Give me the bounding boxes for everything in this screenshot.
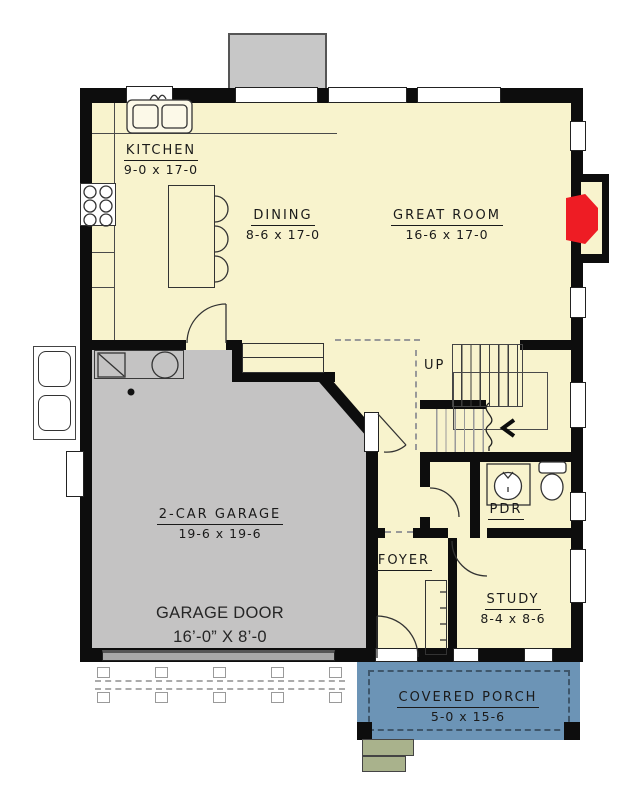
washer-diagonal xyxy=(99,354,124,376)
stair-break-line xyxy=(486,403,492,451)
label-kitchen: KITCHEN 9-0 x 17-0 xyxy=(105,139,217,178)
label-pdr: PDR xyxy=(482,498,530,520)
floor-plan: KITCHEN 9-0 x 17-0 DINING 8-6 x 17-0 GRE… xyxy=(0,0,640,800)
kitchen-door-swing xyxy=(187,304,226,343)
front-door-swing xyxy=(377,616,418,657)
garage-entry-door-swing xyxy=(384,445,406,452)
label-study: STUDY 8-4 x 8-6 xyxy=(463,588,563,627)
porch-dims: 5-0 x 15-6 xyxy=(378,709,558,725)
fixtures-overlay xyxy=(0,0,640,800)
label-foyer: FOYER xyxy=(368,549,440,571)
garage-door-dims: 16’-0” X 8’-0 xyxy=(140,626,300,650)
dining-name: DINING xyxy=(251,208,314,226)
kitchen-name: KITCHEN xyxy=(124,143,198,161)
toilet-bowl xyxy=(541,474,563,500)
range-burner-icons xyxy=(84,186,112,226)
study-name: STUDY xyxy=(485,592,542,610)
pedestal-sink-icon xyxy=(495,473,522,500)
stair-direction-arrow xyxy=(503,420,514,436)
dining-dims: 8-6 x 17-0 xyxy=(233,227,333,243)
toilet-tank xyxy=(539,462,566,473)
label-covered-porch: COVERED PORCH 5-0 x 15-6 xyxy=(378,686,558,725)
kitchen-faucet-icon xyxy=(150,95,166,100)
label-garage-door: GARAGE DOOR 16’-0” X 8’-0 xyxy=(140,602,300,650)
kitchen-dims: 9-0 x 17-0 xyxy=(105,162,217,178)
garage-name: 2-CAR GARAGE xyxy=(157,507,284,525)
label-up: UP xyxy=(424,358,445,373)
closet-door-swing xyxy=(430,488,459,517)
label-garage: 2-CAR GARAGE 19-6 x 19-6 xyxy=(140,503,300,542)
garage-entry-door-leaf xyxy=(378,414,406,445)
shelf-tick-marks xyxy=(440,592,447,640)
label-dining: DINING 8-6 x 17-0 xyxy=(233,204,333,243)
dryer-icon xyxy=(152,352,178,378)
garage-dims: 19-6 x 19-6 xyxy=(140,526,300,542)
porch-name: COVERED PORCH xyxy=(397,690,540,708)
garage-door-name: GARAGE DOOR xyxy=(140,602,300,626)
great-room-name: GREAT ROOM xyxy=(391,208,503,226)
bar-stool-icons xyxy=(215,196,228,282)
garage-floor-drain xyxy=(128,389,135,396)
pdr-name: PDR xyxy=(488,502,525,520)
foyer-name: FOYER xyxy=(376,553,432,571)
study-door-swing xyxy=(452,541,487,576)
great-room-dims: 16-6 x 17-0 xyxy=(382,227,512,243)
label-great-room: GREAT ROOM 16-6 x 17-0 xyxy=(382,204,512,243)
study-dims: 8-4 x 8-6 xyxy=(463,611,563,627)
